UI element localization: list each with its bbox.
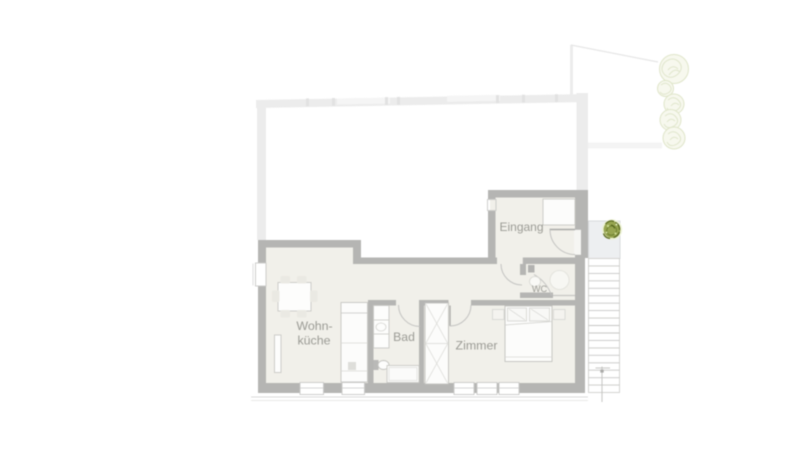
svg-text:Wohn-: Wohn- [296,319,332,333]
svg-text:Eingang: Eingang [499,220,543,234]
svg-text:Bad: Bad [393,330,415,344]
svg-text:WC: WC [532,284,548,294]
svg-text:Zimmer: Zimmer [456,339,498,353]
svg-text:küche: küche [297,334,330,348]
